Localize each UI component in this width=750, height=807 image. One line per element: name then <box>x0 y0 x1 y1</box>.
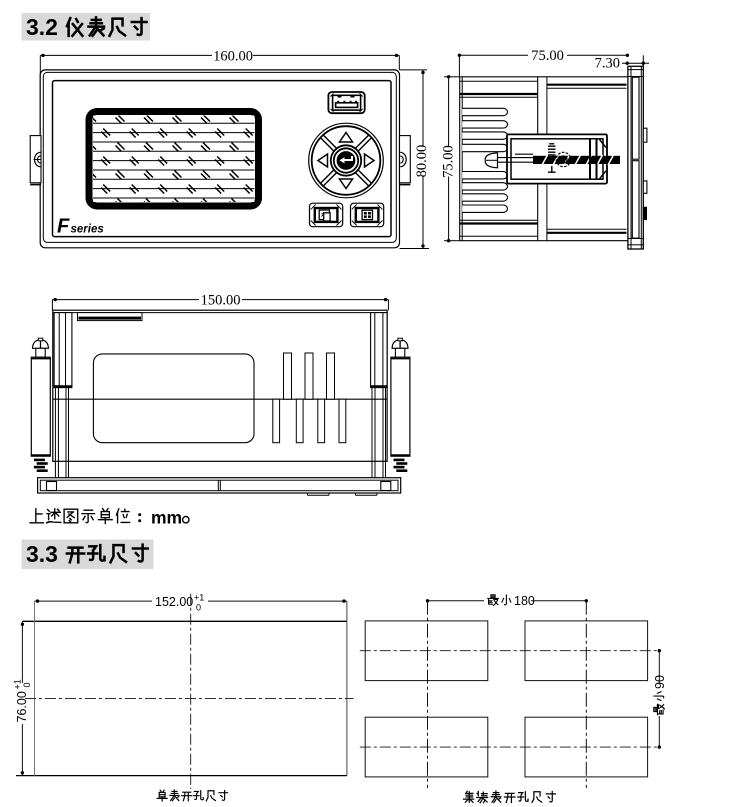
svg-text:76.00: 76.00 <box>15 691 29 722</box>
svg-text:+1: +1 <box>13 679 23 689</box>
svg-text:3.3: 3.3 <box>26 541 58 567</box>
svg-text:150.00: 150.00 <box>201 292 241 308</box>
svg-text:3.2: 3.2 <box>26 14 58 40</box>
svg-text:180: 180 <box>514 594 535 608</box>
svg-text:75.00: 75.00 <box>441 145 457 178</box>
svg-text:152.00: 152.00 <box>155 595 193 609</box>
svg-text:F: F <box>57 216 70 238</box>
svg-text:90: 90 <box>653 675 667 689</box>
svg-text:0: 0 <box>196 602 201 612</box>
svg-text:7.30: 7.30 <box>595 56 620 72</box>
svg-text:mm: mm <box>151 508 182 528</box>
svg-text:series: series <box>71 224 104 236</box>
svg-text:160.00: 160.00 <box>213 49 253 65</box>
svg-text:75.00: 75.00 <box>531 48 564 64</box>
svg-text:80.00: 80.00 <box>414 145 430 178</box>
svg-text:0: 0 <box>22 682 32 687</box>
svg-text:+1: +1 <box>194 592 204 602</box>
